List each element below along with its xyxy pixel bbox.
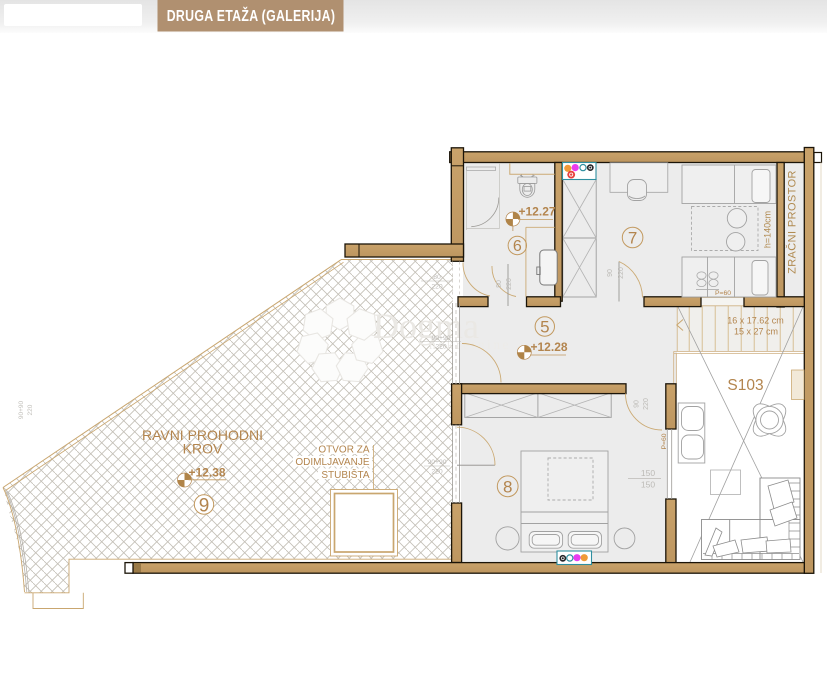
svg-text:80: 80 — [433, 274, 441, 281]
svg-text:90+90: 90+90 — [18, 400, 25, 419]
svg-text:90+90: 90+90 — [427, 459, 446, 466]
svg-text:OTVOR ZA: OTVOR ZA — [318, 445, 369, 456]
svg-text:ZRAČNI PROSTOR: ZRAČNI PROSTOR — [786, 170, 799, 274]
svg-text:220: 220 — [643, 398, 650, 410]
svg-text:P=60: P=60 — [661, 433, 668, 449]
svg-text:220: 220 — [431, 284, 443, 291]
svg-text:+12.27: +12.27 — [519, 205, 556, 219]
svg-text:220: 220 — [506, 278, 513, 290]
svg-text:5: 5 — [540, 318, 549, 337]
svg-text:8: 8 — [503, 478, 512, 497]
svg-text:15 x 27 cm: 15 x 27 cm — [734, 327, 778, 337]
svg-text:220: 220 — [431, 469, 443, 476]
svg-text:6: 6 — [513, 238, 522, 255]
svg-text:DRUGA ETAŽA (GALERIJA): DRUGA ETAŽA (GALERIJA) — [167, 5, 336, 25]
svg-text:220: 220 — [27, 404, 34, 415]
svg-text:90+90: 90+90 — [431, 335, 450, 342]
svg-text:220: 220 — [435, 344, 447, 351]
svg-text:7: 7 — [628, 229, 637, 248]
svg-text:KROV: KROV — [183, 441, 223, 457]
svg-text:90: 90 — [607, 269, 614, 277]
svg-text:+12.38: +12.38 — [189, 466, 226, 480]
svg-text:150: 150 — [641, 480, 655, 490]
svg-text:16 x 17.62 cm: 16 x 17.62 cm — [727, 316, 784, 326]
svg-text:+12.28: +12.28 — [531, 340, 568, 354]
svg-text:P=60: P=60 — [715, 290, 731, 297]
svg-text:S103: S103 — [727, 377, 763, 394]
svg-text:220: 220 — [618, 267, 625, 279]
svg-text:80: 80 — [496, 280, 503, 288]
svg-text:STUBIŠTA: STUBIŠTA — [321, 468, 369, 481]
svg-text:90: 90 — [634, 400, 641, 408]
svg-text:9: 9 — [199, 496, 210, 517]
svg-text:150: 150 — [641, 468, 655, 478]
svg-text:h=140cm: h=140cm — [763, 211, 773, 248]
svg-text:ODIMLJAVANJE: ODIMLJAVANJE — [295, 457, 369, 468]
